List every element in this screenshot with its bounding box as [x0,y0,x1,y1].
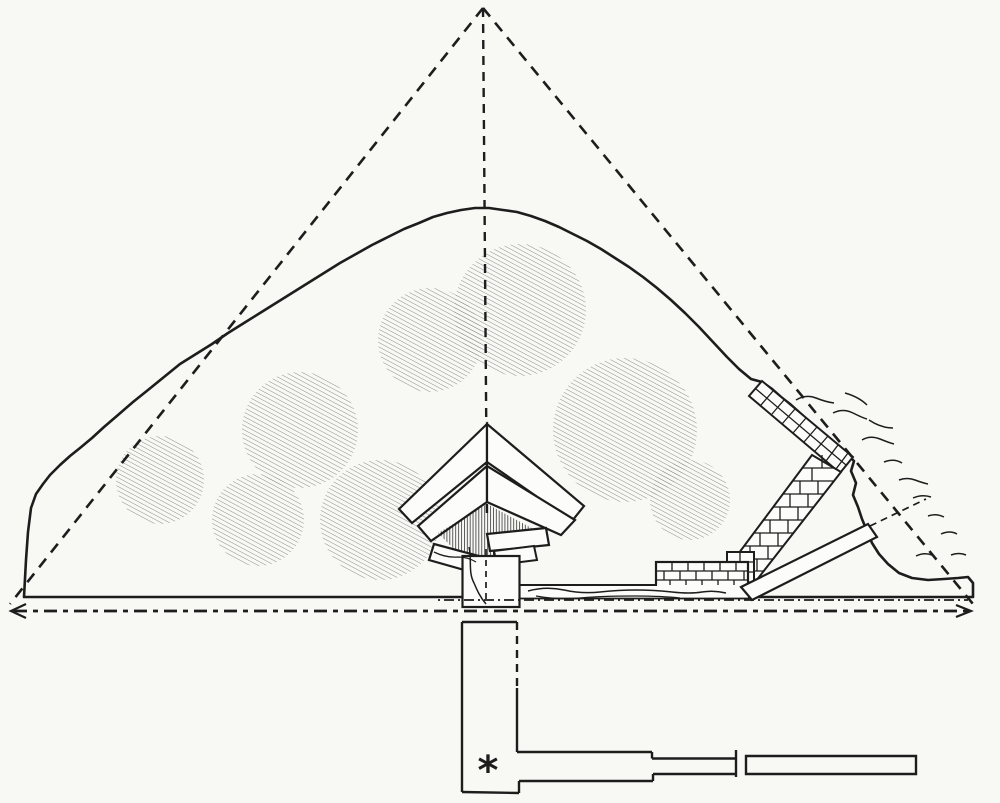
pyramid-section-diagram: * [0,0,1000,803]
substructure-plan: * [462,622,916,794]
plan-passage-far-segment [746,756,916,774]
shaft-marker: * [478,748,499,794]
engraving-figure: * [0,0,1000,803]
